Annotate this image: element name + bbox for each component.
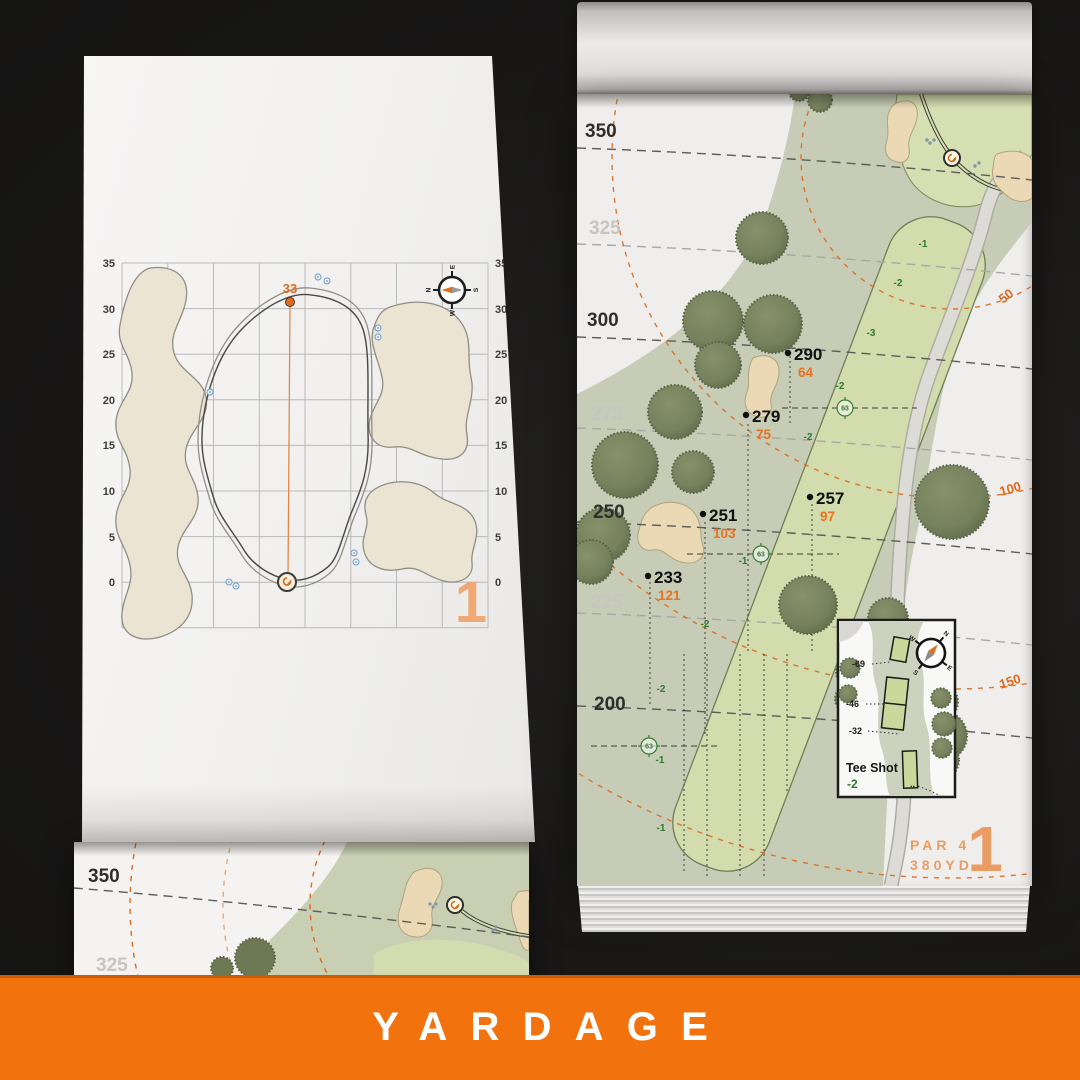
svg-text:150: 150 [997, 671, 1022, 692]
compass-e: E [450, 264, 457, 269]
page-curl [577, 2, 1032, 94]
hole-number: 1 [967, 813, 1003, 885]
svg-text:275: 275 [591, 404, 623, 425]
svg-text:20: 20 [103, 395, 115, 407]
svg-text:257: 257 [816, 489, 844, 508]
svg-text:50: 50 [996, 286, 1017, 307]
hole-map: 63 63 63 -1 -2 -3 -2 -2 -1 -2 -2 [577, 94, 1032, 886]
svg-text:121: 121 [658, 588, 681, 603]
svg-text:100: 100 [998, 478, 1023, 498]
svg-text:-2: -2 [894, 278, 903, 289]
svg-text:-1: -1 [657, 823, 666, 834]
svg-text:20: 20 [495, 395, 507, 407]
tee-inset-title: Tee Shot [846, 761, 899, 775]
svg-text:30: 30 [103, 304, 115, 316]
svg-text:64: 64 [798, 365, 814, 380]
pin-icon [944, 150, 960, 166]
compass-s: S [473, 287, 480, 292]
depth-line [288, 306, 290, 575]
svg-text:-1: -1 [919, 239, 928, 250]
green-detail-page: 33 [62, 56, 537, 842]
svg-text:103: 103 [713, 526, 736, 541]
pin-icon [447, 897, 463, 913]
svg-text:300: 300 [587, 310, 619, 331]
green-detail-diagram: 33 [90, 245, 510, 645]
svg-text:25: 25 [495, 349, 507, 361]
next-page-preview: 350 325 [74, 842, 529, 975]
svg-text:5: 5 [109, 532, 115, 544]
pin-icon [278, 573, 296, 591]
tee-offset: -46 [846, 699, 859, 709]
axis-labels-right: 35 30 25 20 15 10 5 0 [495, 258, 507, 589]
yardage-banner: YARDAGE [0, 975, 1080, 1080]
svg-text:-2: -2 [804, 432, 813, 443]
svg-text:325: 325 [589, 218, 621, 239]
svg-text:279: 279 [752, 407, 780, 426]
par-label: PAR 4 [910, 837, 970, 853]
svg-text:63: 63 [757, 552, 765, 559]
tee-shot-inset: -69 -46 -32 Tee Shot -2 .. N E S W [838, 615, 969, 797]
svg-text:63: 63 [645, 744, 653, 751]
page-stack [578, 886, 1030, 932]
svg-text:-1: -1 [739, 556, 748, 567]
svg-text:35: 35 [103, 258, 115, 270]
tee-offset: -69 [852, 659, 865, 669]
svg-text:251: 251 [709, 506, 737, 525]
svg-text:75: 75 [756, 427, 772, 442]
compass-n: N [426, 287, 433, 292]
sprinkler-dots [209, 276, 379, 587]
green-depth-label: 33 [283, 281, 297, 296]
compass-w: W [450, 309, 457, 316]
svg-text:15: 15 [103, 440, 115, 452]
svg-text:0: 0 [495, 577, 501, 589]
yardage-book-poster: 350 325 33 [0, 0, 1080, 1080]
banner-title: YARDAGE [349, 1005, 731, 1050]
svg-text:0: 0 [109, 577, 115, 589]
svg-text:290: 290 [794, 345, 822, 364]
green-outline [198, 288, 372, 587]
next-page-map: 350 325 [74, 842, 529, 975]
depth-dot [286, 298, 295, 307]
tee-inset-slope: -2 [847, 777, 858, 791]
svg-text:233: 233 [654, 568, 682, 587]
tee-offset: -32 [849, 726, 862, 736]
svg-text:10: 10 [495, 486, 507, 498]
svg-text:200: 200 [594, 694, 626, 715]
svg-text:25: 25 [103, 349, 115, 361]
svg-text:97: 97 [820, 509, 835, 524]
hole-number: 1 [455, 570, 487, 635]
svg-text:-2: -2 [836, 381, 845, 392]
svg-text:350: 350 [585, 121, 617, 142]
distance-band-label: 350 [88, 866, 120, 887]
svg-text:-2: -2 [701, 619, 710, 630]
svg-text:-3: -3 [867, 328, 876, 339]
tee-inset-dots: .. [910, 779, 915, 789]
svg-text:-2: -2 [657, 684, 666, 695]
distance-band-label: 325 [96, 955, 128, 975]
yardage-label: 380YD [910, 857, 973, 873]
svg-text:63: 63 [841, 406, 849, 413]
svg-text:225: 225 [591, 592, 623, 613]
arc-labels: 50 100 150 [996, 286, 1023, 692]
svg-text:10: 10 [103, 486, 115, 498]
tree [211, 938, 275, 975]
svg-text:-1: -1 [656, 755, 665, 766]
svg-text:15: 15 [495, 440, 507, 452]
axis-labels-left: 35 30 25 20 15 10 5 0 [103, 258, 115, 589]
page-curl-shade [62, 786, 537, 842]
svg-text:30: 30 [495, 304, 507, 316]
hole-map-page: 63 63 63 -1 -2 -3 -2 -2 -1 -2 -2 [577, 94, 1032, 886]
svg-text:5: 5 [495, 532, 501, 544]
svg-text:250: 250 [593, 502, 625, 523]
svg-text:35: 35 [495, 258, 507, 270]
